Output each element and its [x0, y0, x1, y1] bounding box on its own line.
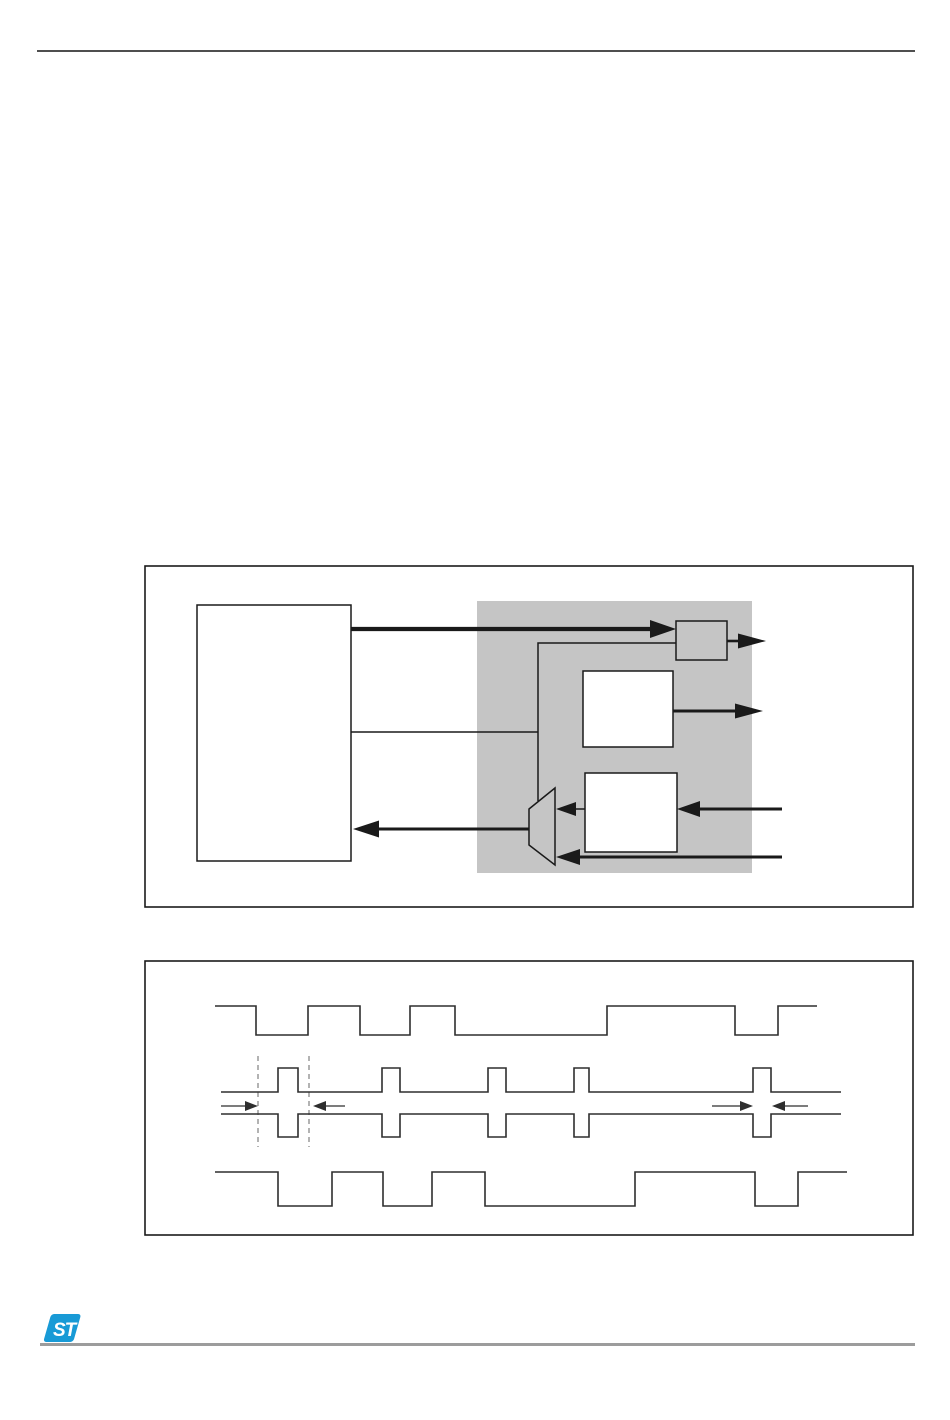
left-large-block — [197, 605, 351, 861]
figure-block-diagram — [142, 563, 916, 910]
footer-rule — [40, 1343, 915, 1346]
st-logo: ST — [42, 1313, 88, 1344]
header-rule — [37, 50, 915, 52]
figure-timing-diagram — [142, 958, 916, 1238]
document-page: ST — [0, 0, 950, 1420]
st-logo-text: ST — [53, 1320, 78, 1341]
small-top-block — [676, 621, 727, 660]
middle-block — [583, 671, 673, 747]
lower-block — [585, 773, 677, 852]
